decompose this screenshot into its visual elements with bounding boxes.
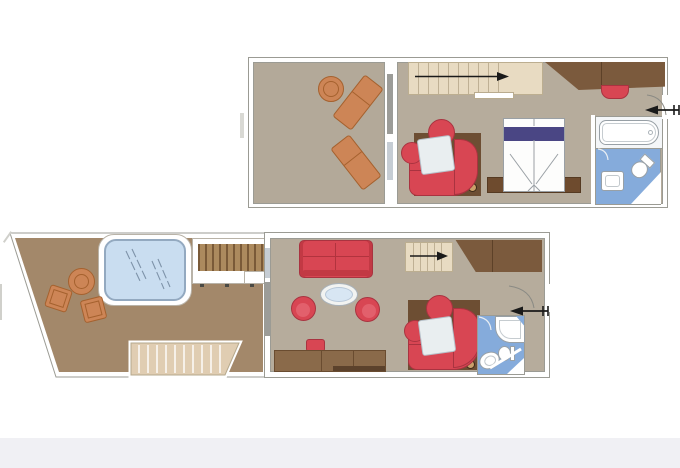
deck-step-line <box>244 271 245 284</box>
armchair-seat <box>296 303 310 317</box>
desk-console <box>274 350 386 372</box>
floorplan-canvas <box>0 0 680 468</box>
stair-treads <box>409 63 507 94</box>
bathtub-room <box>595 116 663 149</box>
bench <box>601 85 629 99</box>
bathtub-drain <box>648 130 653 135</box>
staircase-lower <box>405 242 453 272</box>
chair-seat <box>84 300 102 318</box>
lounger-seam <box>344 151 362 165</box>
table-ring <box>74 274 89 289</box>
washbasin-bowl <box>605 175 620 187</box>
bathroom-upper <box>595 148 661 205</box>
lounger-seam <box>352 91 370 105</box>
toilet <box>626 151 658 184</box>
dining-table <box>418 316 457 356</box>
desk-seam <box>321 351 322 371</box>
entry-opening <box>662 95 670 119</box>
lower-level-plan <box>8 228 553 380</box>
upper-level-plan <box>248 57 668 208</box>
entry-opening <box>545 284 553 312</box>
edge-fragment <box>0 284 2 320</box>
sofa-front <box>302 270 370 276</box>
toilet <box>498 344 515 363</box>
deck-box <box>192 238 272 284</box>
whirlpool <box>104 239 186 301</box>
stair-landing-lip <box>474 92 514 99</box>
double-bed <box>503 118 565 192</box>
stair-treads <box>407 243 445 271</box>
edge-fragment <box>240 113 244 138</box>
water-glints <box>106 241 184 299</box>
armchair <box>291 296 316 321</box>
chair-seat <box>49 289 68 308</box>
washbasin-bowl <box>483 354 498 368</box>
dining-table <box>417 135 456 175</box>
shower-tray <box>499 320 521 339</box>
bathtub <box>599 120 659 145</box>
armchair-seat <box>362 304 376 318</box>
coffee-table <box>320 283 358 306</box>
coffee-table-top <box>325 287 353 302</box>
terrace-steps <box>131 343 239 375</box>
staircase-upper <box>408 62 543 95</box>
window-panel <box>387 142 393 180</box>
footer-bar <box>0 438 680 468</box>
washbasin <box>601 171 624 191</box>
bed-runner <box>504 127 564 141</box>
deck-planks <box>198 244 266 271</box>
desk-front <box>333 366 385 371</box>
terrace-side-table <box>318 76 344 102</box>
sofa <box>299 240 373 278</box>
sliding-door-panel <box>387 74 393 134</box>
wardrobe-seam <box>492 240 493 272</box>
armchair <box>355 297 380 322</box>
sofa-back-line <box>303 256 369 257</box>
table-ring <box>323 81 339 97</box>
